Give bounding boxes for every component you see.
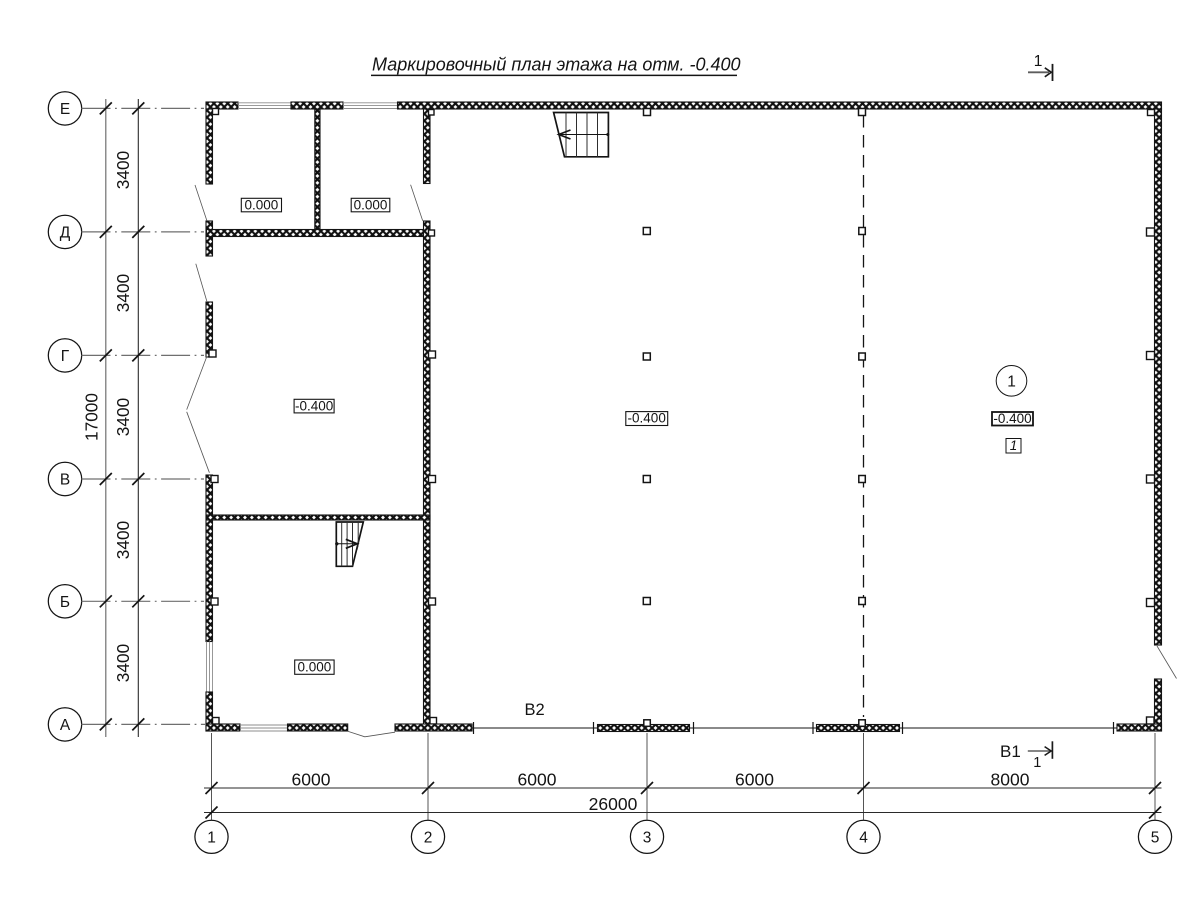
svg-text:2: 2 (424, 829, 433, 846)
svg-text:1: 1 (207, 829, 216, 846)
svg-text:-0.400: -0.400 (993, 411, 1031, 426)
svg-text:Маркировочный план этажа на от: Маркировочный план этажа на отм. -0.400 (372, 55, 741, 75)
svg-text:5: 5 (1151, 829, 1160, 846)
svg-text:3400: 3400 (113, 274, 133, 312)
svg-text:-0.400: -0.400 (628, 411, 666, 426)
svg-text:6000: 6000 (518, 769, 557, 789)
svg-text:Д: Д (60, 224, 71, 241)
svg-text:Г: Г (61, 348, 70, 365)
svg-text:1: 1 (1034, 53, 1043, 70)
svg-text:Б: Б (60, 594, 70, 611)
svg-text:6000: 6000 (292, 769, 331, 789)
svg-text:8000: 8000 (991, 769, 1030, 789)
svg-text:0.000: 0.000 (245, 197, 279, 212)
svg-text:3: 3 (643, 829, 652, 846)
svg-text:3400: 3400 (113, 151, 133, 189)
svg-text:26000: 26000 (589, 794, 638, 814)
svg-text:А: А (60, 717, 71, 734)
svg-text:-0.400: -0.400 (295, 398, 333, 413)
svg-text:17000: 17000 (82, 393, 102, 441)
svg-text:0.000: 0.000 (298, 660, 332, 675)
svg-text:1: 1 (1007, 373, 1016, 390)
svg-text:В1: В1 (1000, 742, 1021, 761)
svg-text:1: 1 (1010, 438, 1018, 453)
svg-text:В: В (60, 472, 70, 489)
svg-text:Е: Е (60, 101, 70, 118)
svg-text:3400: 3400 (113, 521, 133, 559)
svg-text:1: 1 (1033, 755, 1041, 771)
svg-text:В2: В2 (525, 701, 545, 719)
svg-text:6000: 6000 (735, 769, 774, 789)
svg-text:0.000: 0.000 (354, 197, 388, 212)
svg-text:3400: 3400 (113, 644, 133, 682)
svg-text:3400: 3400 (113, 398, 133, 436)
svg-text:4: 4 (859, 829, 868, 846)
